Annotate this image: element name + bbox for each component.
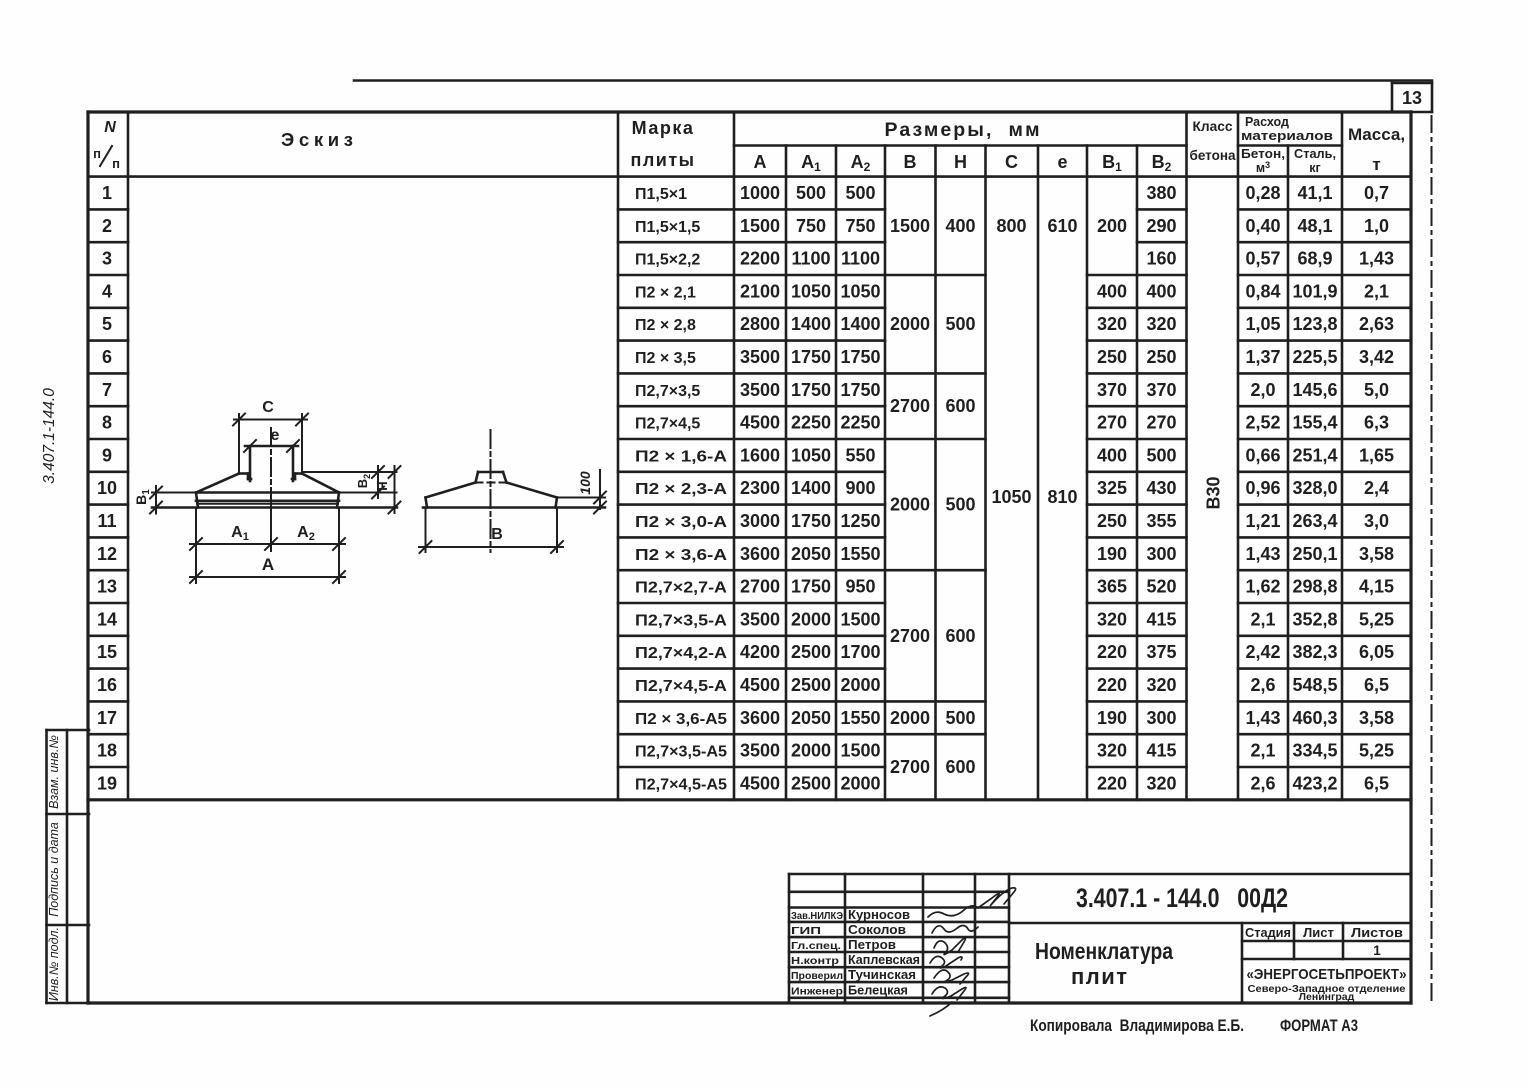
svg-text:П2,7×4,5-А5: П2,7×4,5-А5 xyxy=(635,776,727,793)
svg-text:3.407.1 - 144.0 00Д2: 3.407.1 - 144.0 00Д2 xyxy=(1076,883,1288,913)
svg-text:П2,7×4,2-А: П2,7×4,2-А xyxy=(635,645,727,662)
svg-text:1550: 1550 xyxy=(840,544,880,564)
svg-text:Стадия: Стадия xyxy=(1245,925,1291,940)
svg-text:Каплевская: Каплевская xyxy=(848,953,920,967)
svg-text:400: 400 xyxy=(1146,281,1176,301)
svg-text:2300: 2300 xyxy=(740,478,780,498)
svg-text:8: 8 xyxy=(102,413,112,433)
svg-text:2,1: 2,1 xyxy=(1250,741,1275,761)
svg-text:2,6: 2,6 xyxy=(1250,773,1275,793)
svg-text:4500: 4500 xyxy=(740,773,780,793)
svg-text:Сталь,: Сталь, xyxy=(1294,147,1336,161)
svg-text:400: 400 xyxy=(1097,281,1127,301)
svg-text:1400: 1400 xyxy=(791,478,831,498)
svg-text:415: 415 xyxy=(1146,741,1176,761)
svg-text:1100: 1100 xyxy=(791,249,830,269)
svg-text:41,1: 41,1 xyxy=(1297,183,1332,203)
svg-text:Инженер: Инженер xyxy=(791,986,843,998)
svg-text:7: 7 xyxy=(102,380,112,400)
svg-text:365: 365 xyxy=(1097,577,1127,597)
svg-text:А: А xyxy=(262,555,274,574)
svg-text:190: 190 xyxy=(1097,708,1127,728)
svg-text:П2 × 2,1: П2 × 2,1 xyxy=(635,284,696,301)
svg-text:500: 500 xyxy=(1146,445,1176,465)
svg-text:5: 5 xyxy=(102,314,112,334)
svg-text:250: 250 xyxy=(1097,347,1127,367)
svg-text:Копировала Владимирова Е.Б.: Копировала Владимирова Е.Б. xyxy=(1030,1017,1244,1035)
svg-text:2500: 2500 xyxy=(791,675,831,695)
svg-text:ГИП: ГИП xyxy=(791,925,821,937)
svg-text:кг: кг xyxy=(1309,161,1320,175)
svg-text:2500: 2500 xyxy=(791,642,831,662)
svg-text:1000: 1000 xyxy=(740,183,780,203)
svg-text:370: 370 xyxy=(1146,380,1176,400)
svg-text:18: 18 xyxy=(97,741,117,761)
svg-text:1500: 1500 xyxy=(840,609,880,629)
svg-text:1100: 1100 xyxy=(841,249,880,269)
svg-text:2,1: 2,1 xyxy=(1250,609,1275,629)
svg-text:270: 270 xyxy=(1097,413,1127,433)
svg-text:2000: 2000 xyxy=(890,314,930,334)
svg-text:П2,7×3,5: П2,7×3,5 xyxy=(635,383,700,400)
svg-text:1400: 1400 xyxy=(791,314,831,334)
svg-text:1,43: 1,43 xyxy=(1245,544,1280,564)
svg-text:В: В xyxy=(904,152,917,172)
svg-text:6,3: 6,3 xyxy=(1364,413,1389,433)
svg-text:500: 500 xyxy=(945,495,975,515)
svg-text:Марка: Марка xyxy=(632,118,695,138)
svg-text:П2 × 3,5: П2 × 3,5 xyxy=(635,350,696,367)
svg-text:382,3: 382,3 xyxy=(1292,642,1337,662)
svg-text:Размеры, мм: Размеры, мм xyxy=(885,119,1040,141)
svg-text:Подпись и дата: Подпись и дата xyxy=(47,822,61,917)
svg-text:900: 900 xyxy=(845,478,875,498)
svg-text:12: 12 xyxy=(97,544,117,564)
svg-text:В30: В30 xyxy=(1204,476,1224,509)
svg-text:П2,7×4,5-А: П2,7×4,5-А xyxy=(635,678,727,695)
svg-text:А: А xyxy=(754,152,767,172)
svg-text:Номенклатура: Номенклатура xyxy=(1035,938,1173,964)
svg-text:1400: 1400 xyxy=(840,314,880,334)
svg-text:4: 4 xyxy=(102,281,112,301)
svg-text:2500: 2500 xyxy=(791,773,831,793)
svg-text:220: 220 xyxy=(1097,642,1127,662)
svg-text:2000: 2000 xyxy=(791,741,831,761)
svg-text:П2 × 2,3-А: П2 × 2,3-А xyxy=(635,481,728,498)
svg-text:3,58: 3,58 xyxy=(1359,708,1394,728)
svg-text:ФОРМАТ А3: ФОРМАТ А3 xyxy=(1280,1017,1358,1035)
svg-text:14: 14 xyxy=(97,609,117,629)
svg-text:плит: плит xyxy=(1071,964,1127,989)
svg-text:Гл.спец.: Гл.спец. xyxy=(791,940,841,952)
svg-text:бетона: бетона xyxy=(1190,148,1236,163)
svg-text:1,21: 1,21 xyxy=(1245,511,1280,531)
svg-text:250: 250 xyxy=(1146,347,1176,367)
svg-text:370: 370 xyxy=(1097,380,1127,400)
svg-text:1500: 1500 xyxy=(890,216,930,236)
svg-text:2,52: 2,52 xyxy=(1245,413,1280,433)
svg-text:250: 250 xyxy=(1097,511,1127,531)
svg-text:е: е xyxy=(271,427,280,444)
svg-text:145,6: 145,6 xyxy=(1292,380,1337,400)
svg-text:334,5: 334,5 xyxy=(1292,741,1337,761)
svg-text:5,25: 5,25 xyxy=(1359,741,1394,761)
svg-text:Бетон,: Бетон, xyxy=(1241,147,1285,161)
svg-text:101,9: 101,9 xyxy=(1292,281,1337,301)
svg-text:Инв.№ подл.: Инв.№ подл. xyxy=(47,927,61,1001)
svg-text:2,0: 2,0 xyxy=(1250,380,1275,400)
svg-text:2000: 2000 xyxy=(890,708,930,728)
svg-text:П2 × 1,6-А: П2 × 1,6-А xyxy=(635,448,728,465)
svg-text:1750: 1750 xyxy=(791,577,831,597)
svg-text:П2 × 2,8: П2 × 2,8 xyxy=(635,317,696,334)
svg-text:0,40: 0,40 xyxy=(1245,216,1280,236)
svg-text:Расход: Расход xyxy=(1245,115,1289,129)
svg-text:0,84: 0,84 xyxy=(1245,281,1280,301)
svg-text:352,8: 352,8 xyxy=(1292,609,1337,629)
svg-text:2000: 2000 xyxy=(890,495,930,515)
svg-text:500: 500 xyxy=(796,183,826,203)
svg-text:Курносов: Курносов xyxy=(848,908,910,922)
svg-text:2800: 2800 xyxy=(740,314,780,334)
svg-text:500: 500 xyxy=(845,183,875,203)
svg-text:415: 415 xyxy=(1146,609,1176,629)
svg-text:4500: 4500 xyxy=(740,675,780,695)
svg-text:298,8: 298,8 xyxy=(1292,577,1337,597)
svg-text:3600: 3600 xyxy=(740,708,780,728)
svg-text:П1,5×1: П1,5×1 xyxy=(635,186,687,203)
svg-text:325: 325 xyxy=(1097,478,1127,498)
svg-text:П2,7×3,5-А: П2,7×3,5-А xyxy=(635,612,727,629)
svg-text:6,05: 6,05 xyxy=(1359,642,1394,662)
svg-text:320: 320 xyxy=(1146,675,1176,695)
svg-text:е: е xyxy=(1057,152,1067,172)
svg-text:3.407.1-144.0: 3.407.1-144.0 xyxy=(41,388,58,484)
svg-text:2,4: 2,4 xyxy=(1364,478,1389,498)
svg-text:2100: 2100 xyxy=(740,281,780,301)
svg-text:5,25: 5,25 xyxy=(1359,609,1394,629)
svg-text:290: 290 xyxy=(1146,216,1176,236)
svg-text:13: 13 xyxy=(97,577,117,597)
svg-text:П2 × 3,6-А5: П2 × 3,6-А5 xyxy=(635,711,727,728)
svg-text:0,7: 0,7 xyxy=(1364,183,1389,203)
svg-text:123,8: 123,8 xyxy=(1292,314,1337,334)
svg-text:1050: 1050 xyxy=(840,281,880,301)
svg-text:2,1: 2,1 xyxy=(1364,281,1389,301)
svg-text:750: 750 xyxy=(845,216,875,236)
svg-text:4200: 4200 xyxy=(740,642,780,662)
svg-text:п: п xyxy=(112,156,120,171)
svg-text:155,4: 155,4 xyxy=(1292,413,1337,433)
svg-text:10: 10 xyxy=(97,478,117,498)
svg-text:П2,7×2,7-А: П2,7×2,7-А xyxy=(635,580,727,597)
svg-text:1050: 1050 xyxy=(791,445,831,465)
svg-text:П2,7×4,5: П2,7×4,5 xyxy=(635,416,700,433)
svg-text:Соколов: Соколов xyxy=(848,923,906,937)
svg-text:950: 950 xyxy=(845,577,875,597)
svg-text:548,5: 548,5 xyxy=(1292,675,1337,695)
svg-text:320: 320 xyxy=(1097,609,1127,629)
svg-text:3000: 3000 xyxy=(740,511,780,531)
svg-text:Лист: Лист xyxy=(1303,925,1334,940)
svg-text:16: 16 xyxy=(97,675,117,695)
svg-text:400: 400 xyxy=(1097,445,1127,465)
svg-text:2000: 2000 xyxy=(791,609,831,629)
svg-text:Класс: Класс xyxy=(1193,119,1233,134)
svg-text:320: 320 xyxy=(1146,314,1176,334)
svg-text:17: 17 xyxy=(97,708,117,728)
svg-text:1,43: 1,43 xyxy=(1359,249,1394,269)
svg-text:0,96: 0,96 xyxy=(1245,478,1280,498)
svg-text:4500: 4500 xyxy=(740,413,780,433)
svg-text:Петров: Петров xyxy=(848,938,896,952)
svg-text:0,28: 0,28 xyxy=(1245,183,1280,203)
svg-text:610: 610 xyxy=(1047,216,1077,236)
svg-text:Н.контр: Н.контр xyxy=(791,955,839,967)
svg-text:1,37: 1,37 xyxy=(1245,347,1280,367)
svg-text:1250: 1250 xyxy=(840,511,880,531)
svg-text:В: В xyxy=(491,526,503,543)
svg-text:2,63: 2,63 xyxy=(1359,314,1394,334)
svg-text:263,4: 263,4 xyxy=(1292,511,1337,531)
svg-text:1750: 1750 xyxy=(840,347,880,367)
svg-text:1700: 1700 xyxy=(840,642,880,662)
svg-text:1750: 1750 xyxy=(791,380,831,400)
svg-text:П1,5×1,5: П1,5×1,5 xyxy=(635,219,700,236)
svg-text:Масса,: Масса, xyxy=(1348,125,1405,144)
svg-text:550: 550 xyxy=(845,445,875,465)
svg-text:400: 400 xyxy=(945,216,975,236)
svg-text:48,1: 48,1 xyxy=(1297,216,1332,236)
svg-text:3600: 3600 xyxy=(740,544,780,564)
svg-text:190: 190 xyxy=(1097,544,1127,564)
svg-text:460,3: 460,3 xyxy=(1292,708,1337,728)
svg-text:П2,7×3,5-А5: П2,7×3,5-А5 xyxy=(635,744,727,761)
svg-text:500: 500 xyxy=(945,314,975,334)
svg-text:3,0: 3,0 xyxy=(1364,511,1389,531)
svg-text:2000: 2000 xyxy=(840,675,880,695)
svg-text:2,6: 2,6 xyxy=(1250,675,1275,695)
svg-text:2250: 2250 xyxy=(840,413,880,433)
svg-text:68,9: 68,9 xyxy=(1297,249,1332,269)
svg-text:Белецкая: Белецкая xyxy=(848,984,908,998)
svg-text:1,65: 1,65 xyxy=(1359,445,1394,465)
svg-text:220: 220 xyxy=(1097,675,1127,695)
svg-text:1550: 1550 xyxy=(840,708,880,728)
svg-text:300: 300 xyxy=(1146,708,1176,728)
svg-text:1: 1 xyxy=(102,183,112,203)
svg-text:плиты: плиты xyxy=(630,150,695,170)
svg-text:1750: 1750 xyxy=(791,511,831,531)
svg-text:3,58: 3,58 xyxy=(1359,544,1394,564)
svg-text:810: 810 xyxy=(1047,487,1077,507)
svg-text:Ленинград: Ленинград xyxy=(1299,991,1355,1003)
svg-text:С: С xyxy=(262,399,274,416)
svg-text:«ЭНЕРГОСЕТЬПРОЕКТ»: «ЭНЕРГОСЕТЬПРОЕКТ» xyxy=(1247,966,1407,983)
svg-text:200: 200 xyxy=(1097,216,1127,236)
svg-text:2700: 2700 xyxy=(890,396,930,416)
svg-text:П2 × 3,6-А: П2 × 3,6-А xyxy=(635,547,728,564)
svg-text:0,66: 0,66 xyxy=(1245,445,1280,465)
svg-text:0,57: 0,57 xyxy=(1245,249,1280,269)
svg-text:3500: 3500 xyxy=(740,609,780,629)
svg-text:600: 600 xyxy=(945,626,975,646)
svg-text:1: 1 xyxy=(1373,943,1381,958)
svg-text:5,0: 5,0 xyxy=(1364,380,1389,400)
svg-text:2000: 2000 xyxy=(840,773,880,793)
svg-text:2,42: 2,42 xyxy=(1245,642,1280,662)
svg-text:320: 320 xyxy=(1146,773,1176,793)
svg-text:100: 100 xyxy=(577,471,593,495)
svg-text:6,5: 6,5 xyxy=(1364,675,1389,695)
svg-text:П1,5×2,2: П1,5×2,2 xyxy=(635,252,700,269)
svg-text:9: 9 xyxy=(102,445,112,465)
svg-text:600: 600 xyxy=(945,396,975,416)
svg-text:3500: 3500 xyxy=(740,380,780,400)
svg-text:материалов: материалов xyxy=(1241,129,1333,143)
svg-text:270: 270 xyxy=(1146,413,1176,433)
svg-text:520: 520 xyxy=(1146,577,1176,597)
svg-text:4,15: 4,15 xyxy=(1359,577,1394,597)
svg-text:Зав.НИЛКЭ: Зав.НИЛКЭ xyxy=(791,910,843,922)
svg-text:1500: 1500 xyxy=(740,216,780,236)
svg-text:160: 160 xyxy=(1146,249,1176,269)
svg-text:380: 380 xyxy=(1146,183,1176,203)
svg-text:600: 600 xyxy=(945,757,975,777)
svg-text:3500: 3500 xyxy=(740,741,780,761)
svg-text:N: N xyxy=(104,119,116,136)
svg-text:1050: 1050 xyxy=(791,281,831,301)
svg-text:Н: Н xyxy=(375,481,390,490)
svg-text:С: С xyxy=(1005,152,1018,172)
svg-text:Н: Н xyxy=(954,152,967,172)
svg-text:19: 19 xyxy=(97,773,117,793)
svg-text:11: 11 xyxy=(97,511,116,531)
svg-text:1500: 1500 xyxy=(840,741,880,761)
svg-text:1750: 1750 xyxy=(840,380,880,400)
svg-text:355: 355 xyxy=(1146,511,1176,531)
svg-text:375: 375 xyxy=(1146,642,1176,662)
svg-text:800: 800 xyxy=(996,216,1026,236)
svg-text:2250: 2250 xyxy=(791,413,831,433)
svg-text:430: 430 xyxy=(1146,478,1176,498)
svg-text:2050: 2050 xyxy=(791,708,831,728)
svg-text:п: п xyxy=(93,146,101,161)
svg-text:251,4: 251,4 xyxy=(1292,445,1337,465)
svg-text:220: 220 xyxy=(1097,773,1127,793)
svg-text:320: 320 xyxy=(1097,314,1127,334)
svg-text:2700: 2700 xyxy=(890,757,930,777)
svg-text:6,5: 6,5 xyxy=(1364,773,1389,793)
svg-text:250,1: 250,1 xyxy=(1292,544,1337,564)
svg-text:Проверил: Проверил xyxy=(791,970,843,982)
svg-text:3,42: 3,42 xyxy=(1359,347,1394,367)
svg-text:320: 320 xyxy=(1097,741,1127,761)
svg-text:423,2: 423,2 xyxy=(1292,773,1337,793)
svg-text:2700: 2700 xyxy=(890,626,930,646)
svg-text:2200: 2200 xyxy=(740,249,780,269)
svg-text:1750: 1750 xyxy=(791,347,831,367)
svg-text:2050: 2050 xyxy=(791,544,831,564)
svg-text:П2 × 3,0-А: П2 × 3,0-А xyxy=(635,514,728,531)
svg-text:т: т xyxy=(1372,155,1380,174)
svg-text:6: 6 xyxy=(102,347,112,367)
svg-text:1,05: 1,05 xyxy=(1245,314,1280,334)
svg-text:15: 15 xyxy=(97,642,117,662)
svg-text:750: 750 xyxy=(796,216,826,236)
svg-text:3: 3 xyxy=(102,249,112,269)
svg-text:Тучинская: Тучинская xyxy=(848,968,916,982)
svg-text:500: 500 xyxy=(945,708,975,728)
svg-text:1,43: 1,43 xyxy=(1245,708,1280,728)
svg-text:13: 13 xyxy=(1402,88,1422,108)
svg-text:2700: 2700 xyxy=(740,577,780,597)
svg-text:1,62: 1,62 xyxy=(1245,577,1280,597)
svg-text:1,0: 1,0 xyxy=(1364,216,1389,236)
svg-text:2: 2 xyxy=(102,216,112,236)
svg-text:1050: 1050 xyxy=(991,487,1031,507)
svg-text:3500: 3500 xyxy=(740,347,780,367)
svg-text:300: 300 xyxy=(1146,544,1176,564)
svg-text:Взам. инв.№: Взам. инв.№ xyxy=(47,735,61,809)
svg-text:225,5: 225,5 xyxy=(1292,347,1337,367)
svg-text:Листов: Листов xyxy=(1351,925,1403,940)
svg-text:328,0: 328,0 xyxy=(1292,478,1337,498)
svg-text:1600: 1600 xyxy=(740,445,780,465)
